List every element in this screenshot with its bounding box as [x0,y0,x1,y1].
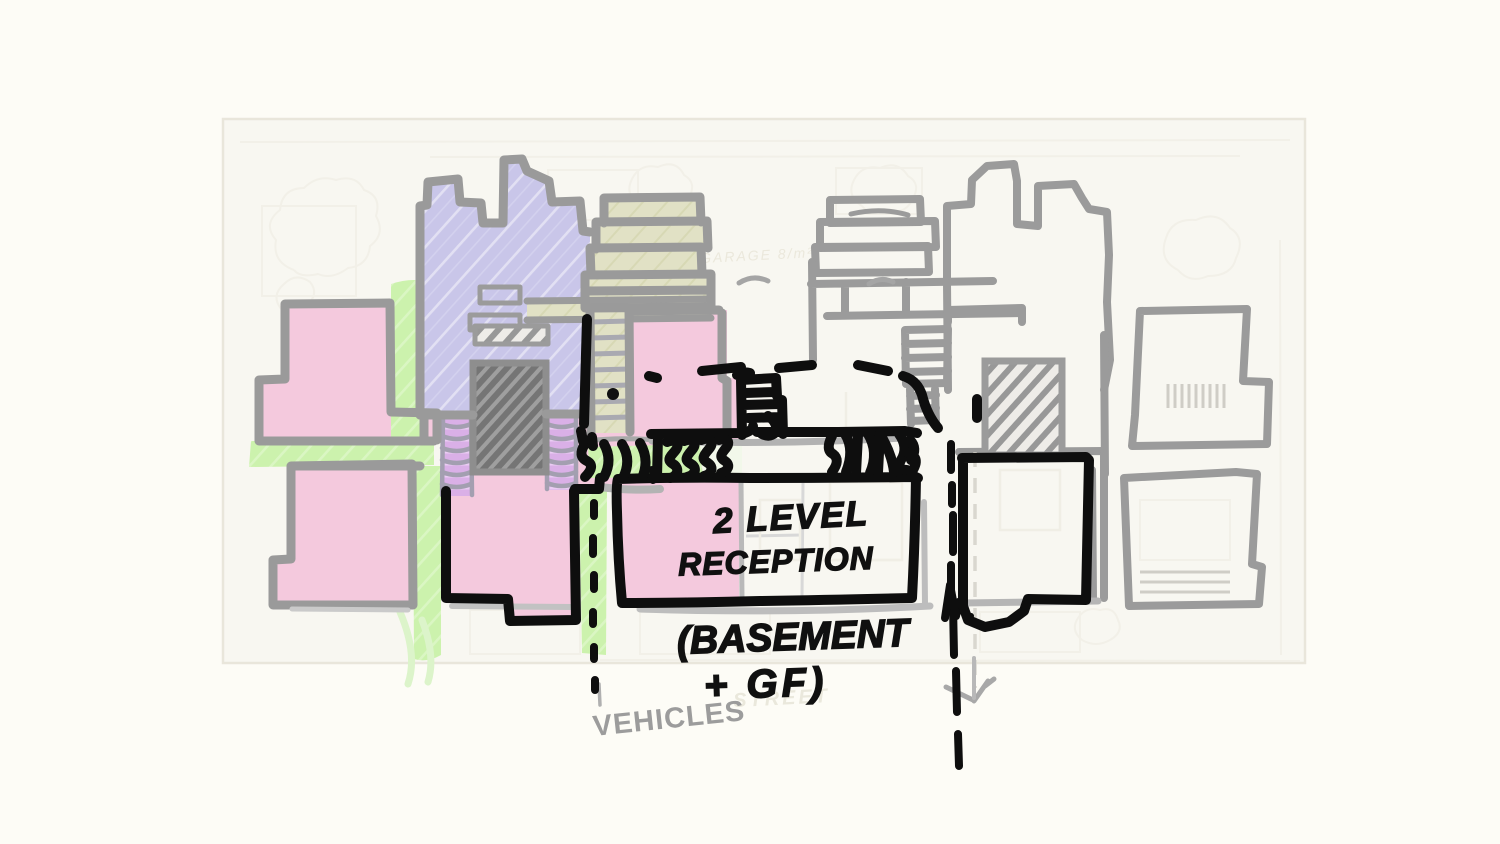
svg-text:RECEPTION: RECEPTION [677,540,874,583]
svg-text:(BASEMENT: (BASEMENT [676,612,912,663]
svg-text:+ GF): + GF) [703,660,828,708]
svg-text:2 LEVEL: 2 LEVEL [711,494,870,541]
